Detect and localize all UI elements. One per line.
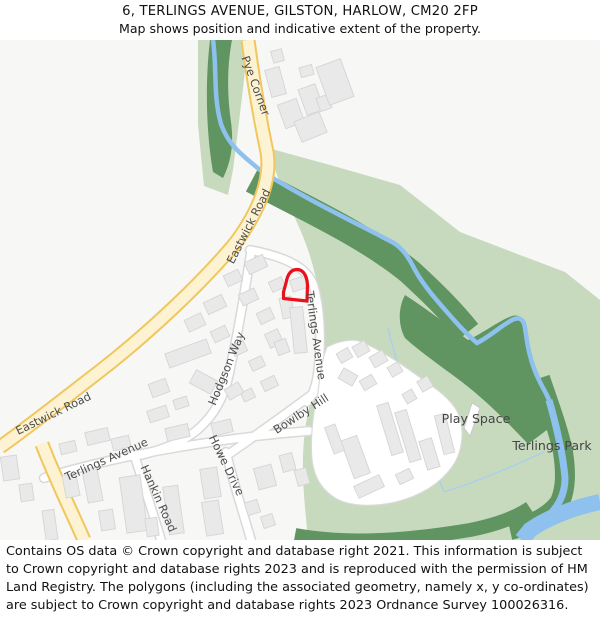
map-header: 6, TERLINGS AVENUE, GILSTON, HARLOW, CM2… — [0, 0, 600, 40]
map-canvas: Pye Corner Eastwick Road Eastwick Road T… — [0, 40, 600, 540]
map-viewport: Pye Corner Eastwick Road Eastwick Road T… — [0, 40, 600, 540]
page-title: 6, TERLINGS AVENUE, GILSTON, HARLOW, CM2… — [0, 0, 600, 19]
area-label-play-space: Play Space — [442, 411, 511, 426]
building — [145, 517, 159, 536]
building — [19, 483, 34, 502]
attribution-text: Contains OS data © Crown copyright and d… — [0, 540, 600, 616]
building — [271, 49, 285, 63]
map-footer: Contains OS data © Crown copyright and d… — [0, 540, 600, 625]
page-subtitle: Map shows position and indicative extent… — [0, 19, 600, 36]
building — [0, 455, 19, 481]
area-label-terlings-park: Terlings Park — [511, 438, 592, 453]
building — [99, 509, 116, 531]
